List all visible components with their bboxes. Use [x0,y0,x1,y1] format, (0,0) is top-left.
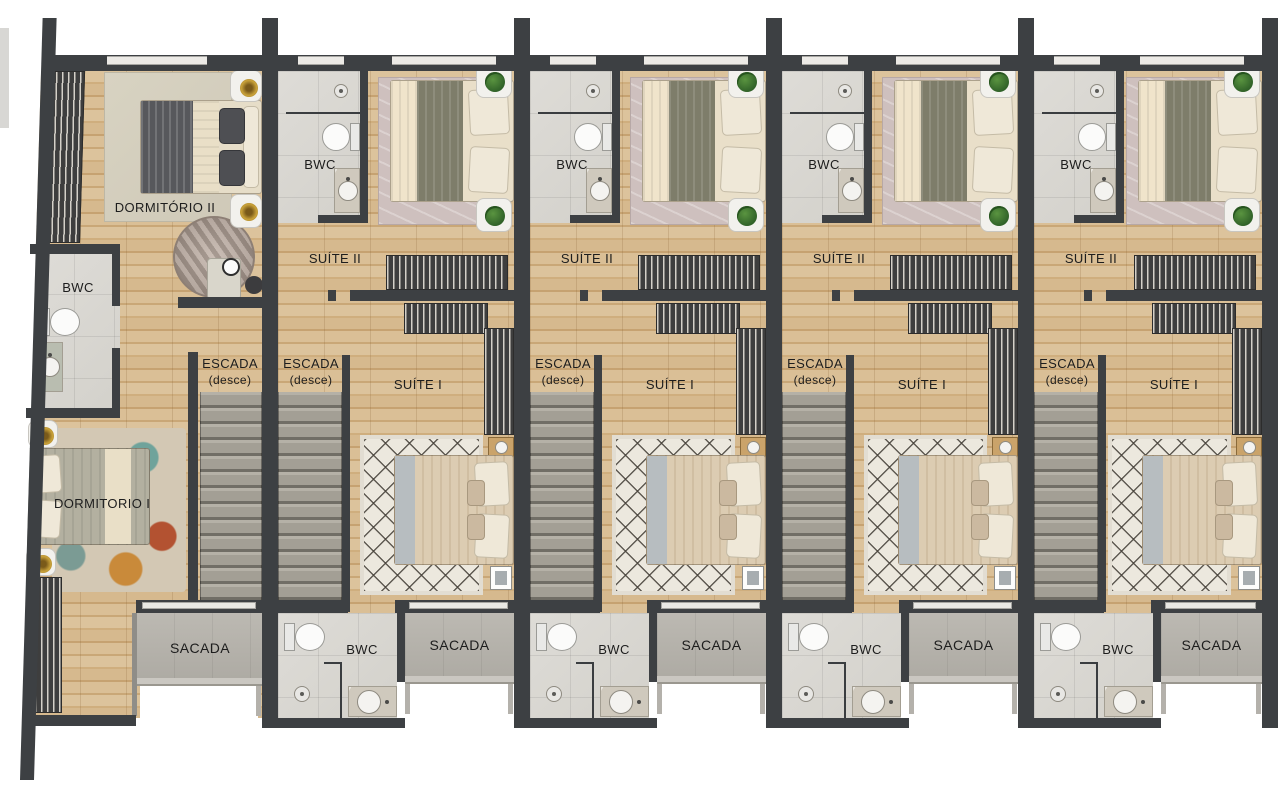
end-unit-1: DORMITÓRIO II BWC DORMITO [0,0,262,800]
nightstand [476,198,512,232]
toilet-bowl [1051,623,1081,651]
plant [737,206,757,226]
blanket [1165,81,1211,201]
shower-glass [286,112,360,114]
room-label-bwc: BWC [56,280,100,295]
room-label-sacada: SACADA [909,637,1018,653]
toilet [574,122,612,152]
suite2-bed [1138,80,1262,202]
suite2-bed [390,80,514,202]
suite2-wardrobe [386,255,508,290]
stair-banister [188,352,198,612]
cushion [467,480,485,506]
window [107,56,207,65]
room-label-bwc-lower: BWC [590,642,638,657]
window [550,56,596,65]
balcony-rail [508,684,513,714]
room-label-suite2: SUÍTE II [304,251,366,266]
pillow-dark [219,150,245,186]
shower-drain [294,686,310,702]
cushion [971,480,989,506]
mid-wall [328,290,336,301]
blanket [417,81,463,201]
faucet [850,177,854,181]
bwc-upper-bottom-wall [318,215,368,223]
toilet-tank [350,123,360,151]
room-label-sacada: SACADA [150,640,250,656]
toilet [826,122,864,152]
foot-blanket [647,456,667,564]
balcony-rail [1161,684,1166,714]
staircase [1034,392,1098,600]
mid-wall [602,290,766,301]
toilet-tank [854,123,864,151]
room-label-suite1: SUÍTE I [640,377,700,392]
bwc-upper-right-wall [360,71,368,218]
balcony-rail [1012,684,1017,714]
staircase [782,392,846,600]
mid-wall [1106,290,1262,301]
bwc-balcony-wall [649,613,657,682]
sink-vanity [1090,168,1116,213]
bwc-upper-right-wall [864,71,872,218]
shower-glass [790,112,864,114]
room-label-bwc-lower: BWC [1094,642,1142,657]
faucet [889,700,893,704]
room-label-sacada: SACADA [1161,637,1262,653]
toilet-tank [788,623,799,651]
faucet [1141,700,1145,704]
suite1-closet [1232,328,1262,435]
stair-label: ESCADA [278,356,344,371]
vanity-dish [1243,441,1256,454]
toilet [322,122,360,152]
stair-banister [342,355,350,612]
toilet-tank [1040,623,1051,651]
party-wall [514,18,530,728]
lower-wall [530,600,600,613]
bwc-top-wall [30,244,120,254]
bwc-balcony-wall [1153,613,1161,682]
bottom-wall [278,718,405,728]
ornament [240,79,258,97]
faucet [637,700,641,704]
room-label-bwc-lower: BWC [338,642,386,657]
room-label-bwc-upper: BWC [298,157,342,172]
room-label-suite1: SUÍTE I [892,377,952,392]
balcony-void [914,684,1018,718]
cushion [1215,514,1233,540]
foot-blanket [899,456,919,564]
shower-drain [1050,686,1066,702]
room-label-bwc-upper: BWC [550,157,594,172]
shower-glass [1096,662,1098,718]
room-label-dormitorio1: DORMITORIO I [54,496,150,511]
window [802,56,848,65]
room-label-suite1: SUÍTE I [388,377,448,392]
shower-glass [340,662,342,718]
right-boundary-wall [1262,18,1278,728]
sink-vanity [348,686,397,717]
typical-unit-2: BWC SUÍTE II ESCADA (desce) [278,0,514,800]
sink-bowl [590,181,610,201]
plant [989,206,1009,226]
toilet [284,622,326,652]
balcony-edge [657,676,766,684]
balcony-void [1166,684,1262,718]
plant [1233,206,1253,226]
suite1-wardrobe [404,303,488,334]
mid-wall [854,290,1018,301]
suite1-bed [394,455,514,565]
balcony-edge [405,676,514,684]
throw [391,81,417,201]
balcony-slider-door [913,602,1012,609]
shower-glass [592,662,594,718]
party-wall [262,18,278,728]
room-label-suite2: SUÍTE II [1060,251,1122,266]
bottom-wall [782,718,909,728]
foot-blanket [1143,456,1163,564]
toilet-bowl [799,623,829,651]
suite2-wardrobe [1134,255,1256,290]
toilet-bowl [547,623,577,651]
shower-glass [828,662,846,664]
suite1-wardrobe [1152,303,1236,334]
shower-drain [798,686,814,702]
sink-bowl [357,690,381,714]
throw [643,81,669,201]
bwc-upper-bottom-wall [822,215,872,223]
toilet-bowl [50,308,80,336]
typical-unit-4: BWC SUÍTE II ESCADA (desce) [782,0,1018,800]
suite2-bed [894,80,1018,202]
bwc-right-wall [112,244,120,306]
vanity-dish [999,441,1012,454]
lower-wall [1034,600,1104,613]
vanity-dish [747,441,760,454]
room-label-suite1: SUÍTE I [1144,377,1204,392]
balcony-edge [136,678,262,686]
balcony-edge [1161,676,1262,684]
balcony-slider-door [1165,602,1256,609]
tv-panel [742,566,764,590]
sink-bowl [861,690,885,714]
sink-vanity [852,686,901,717]
party-wall [766,18,782,728]
balcony-slider-door [661,602,760,609]
toilet-tank [602,123,612,151]
balcony-rail [760,684,765,714]
toilet-bowl [1078,123,1106,151]
party-wall [1018,18,1034,728]
stair-banister [846,355,854,612]
balcony-rail [657,684,662,714]
balcony-rail [909,684,914,714]
suite1-wardrobe [908,303,992,334]
sink-bowl [842,181,862,201]
suite1-bed [898,455,1018,565]
room-label-bwc-upper: BWC [802,157,846,172]
bottom-wall [26,715,136,726]
faucet [1102,177,1106,181]
vanity-dish [495,441,508,454]
balcony-edge [909,676,1018,684]
sink-vanity [838,168,864,213]
stair-label: ESCADA [1034,356,1100,371]
cushion [719,514,737,540]
cushion [467,514,485,540]
sink-vanity [600,686,649,717]
throw [1139,81,1165,201]
nightstand [1224,198,1260,232]
stair-banister [1098,355,1106,612]
shower-glass [1080,662,1098,664]
suite2-wardrobe [890,255,1012,290]
toilet [788,622,830,652]
shower-head [838,84,852,98]
window [392,56,496,65]
foot-blanket [395,456,415,564]
shower-glass [576,662,594,664]
room-label-suite2: SUÍTE II [808,251,870,266]
floor-plan: DORMITÓRIO II BWC DORMITO [0,0,1280,800]
sink-bowl [338,181,358,201]
window [1054,56,1100,65]
cushion [971,514,989,540]
tv-panel [994,566,1016,590]
faucet [385,700,389,704]
suite1-bed [1142,455,1262,565]
cushion [1215,480,1233,506]
bwc-upper-right-wall [612,71,620,218]
suite1-closet [484,328,514,435]
mid-wall [1084,290,1092,301]
nightstand [230,194,262,228]
blanket [669,81,715,201]
window [644,56,748,65]
pillow [468,146,510,194]
throw [895,81,921,201]
blanket [141,101,193,193]
typical-unit-3: BWC SUÍTE II ESCADA (desce) [530,0,766,800]
balcony-rail [256,686,261,716]
pillow [243,106,259,188]
pillow [720,146,762,194]
room-label-sacada: SACADA [405,637,514,653]
sink-bowl [609,690,633,714]
balcony-void [410,684,514,718]
bottom-wall [1034,718,1161,728]
tv-screen [747,571,759,585]
room-label-suite2: SUÍTE II [556,251,618,266]
shower-glass [324,662,342,664]
faucet [598,177,602,181]
stair-sublabel: (desce) [782,373,848,387]
bwc-right-wall [112,348,120,414]
bedroom2-bed [140,100,262,194]
balcony-rail [132,613,137,716]
sink-vanity [1104,686,1153,717]
bwc-upper-right-wall [1116,71,1124,218]
plant [737,72,757,92]
balcony-rail [1256,684,1261,714]
balcony-slider-door [409,602,508,609]
nightstand [230,70,262,102]
shower-drain [546,686,562,702]
bottom-wall [530,718,657,728]
room-label-dormitorio2: DORMITÓRIO II [112,200,218,215]
plant [485,72,505,92]
pillow [972,146,1014,194]
bwc-balcony-wall [397,613,405,682]
shower-glass [1042,112,1116,114]
room-label-bwc-lower: BWC [842,642,890,657]
lower-wall [278,600,348,613]
suite2-bed [642,80,766,202]
shower-glass [844,662,846,718]
stair-label: ESCADA [782,356,848,371]
balcony-rail [405,684,410,714]
toilet-tank [284,623,295,651]
toilet-bowl [826,123,854,151]
tv-panel [490,566,512,590]
nightstand [728,198,764,232]
stair-label: ESCADA [196,356,264,371]
plant [1233,72,1253,92]
toilet-bowl [295,623,325,651]
stair-label: ESCADA [530,356,596,371]
window [896,56,1000,65]
faucet [48,353,52,357]
sink-vanity [586,168,612,213]
toilet-bowl [322,123,350,151]
typical-unit-5: BWC SUÍTE II ESCADA (desce) [1034,0,1262,800]
pillow-dark [219,108,245,144]
staircase [200,392,262,600]
staircase [278,392,342,600]
suite1-closet [988,328,1018,435]
bwc-bottom-wall [26,408,120,418]
staircase [530,392,594,600]
toilet [1040,622,1082,652]
balcony-slider-door [142,602,256,609]
wall-clock [222,258,240,276]
room-label-sacada: SACADA [657,637,766,653]
stair-sublabel: (desce) [278,373,344,387]
stair-sublabel: (desce) [1034,373,1100,387]
window [1140,56,1244,65]
shower-glass [538,112,612,114]
cushion [719,480,737,506]
toilet-tank [1106,123,1116,151]
suite1-wardrobe [656,303,740,334]
toilet-bowl [574,123,602,151]
tv-screen [1243,571,1255,585]
balcony-void [140,686,258,718]
shower-head [586,84,600,98]
throw [193,101,219,193]
bedroom2-wall [178,297,262,308]
room-label-bwc-upper: BWC [1054,157,1098,172]
pillow [1216,146,1258,194]
faucet [346,177,350,181]
sink-vanity [334,168,360,213]
mid-wall [350,290,514,301]
nightstand [980,198,1016,232]
shower-head [1090,84,1104,98]
tv-panel [1238,566,1260,590]
ornament [240,203,258,221]
stool [245,276,263,294]
plant [485,206,505,226]
plant [989,72,1009,92]
toilet [1078,122,1116,152]
stair-sublabel: (desce) [196,373,264,387]
toilet-tank [536,623,547,651]
stair-sublabel: (desce) [530,373,596,387]
suite1-closet [736,328,766,435]
lower-wall [782,600,852,613]
tv-screen [495,571,507,585]
bwc-upper-bottom-wall [570,215,620,223]
sink-bowl [1094,181,1114,201]
mid-wall [580,290,588,301]
mid-wall [832,290,840,301]
shower-head [334,84,348,98]
blanket [921,81,967,201]
balcony-void [662,684,766,718]
suite1-bed [646,455,766,565]
bwc-balcony-wall [901,613,909,682]
window [298,56,344,65]
stair-banister [594,355,602,612]
bwc-upper-bottom-wall [1074,215,1124,223]
tv-screen [999,571,1011,585]
suite2-wardrobe [638,255,760,290]
sink-bowl [1113,690,1137,714]
toilet [536,622,578,652]
